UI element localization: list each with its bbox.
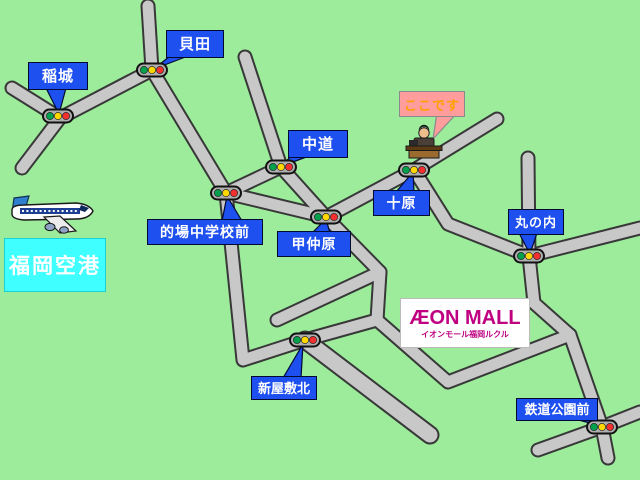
callout-kaida: 貝田 bbox=[166, 30, 224, 58]
callout-inagi: 稲城 bbox=[28, 62, 88, 90]
callout-matoba-junior-high: 的場中学校前 bbox=[147, 219, 263, 245]
airplane-icon bbox=[12, 196, 93, 233]
traffic-light-icon bbox=[137, 64, 167, 77]
traffic-light-icon bbox=[266, 161, 296, 174]
traffic-light-icon bbox=[399, 164, 429, 177]
here-callout: ここです bbox=[399, 91, 465, 117]
traffic-light-icon bbox=[211, 187, 241, 200]
traffic-light-icon bbox=[311, 211, 341, 224]
callout-tetsudo-koen-mae: 鉄道公園前 bbox=[516, 398, 598, 421]
traffic-light-icon bbox=[290, 334, 320, 347]
aeon-mall-logo: ÆON MALL イオンモール福岡ルクル bbox=[400, 298, 530, 348]
airport-label: 福岡空港 bbox=[4, 238, 106, 292]
aeon-mall-subtitle: イオンモール福岡ルクル bbox=[421, 331, 509, 339]
callout-juhara: 十原 bbox=[373, 190, 430, 216]
traffic-light-icon bbox=[43, 110, 73, 123]
traffic-light-icon bbox=[514, 250, 544, 263]
callout-konakahara: 甲仲原 bbox=[277, 231, 351, 257]
callout-marunouchi: 丸の内 bbox=[508, 209, 564, 235]
route-map: 稲城 貝田 中道 的場中学校前 甲仲原 十原 丸の内 新屋敷北 鉄道公園前 ここ… bbox=[0, 0, 640, 480]
traffic-light-icon bbox=[587, 421, 617, 434]
callout-shinyashiki-kita: 新屋敷北 bbox=[251, 376, 317, 400]
callout-nakamichi: 中道 bbox=[288, 130, 348, 158]
aeon-mall-title: ÆON MALL bbox=[409, 308, 520, 328]
